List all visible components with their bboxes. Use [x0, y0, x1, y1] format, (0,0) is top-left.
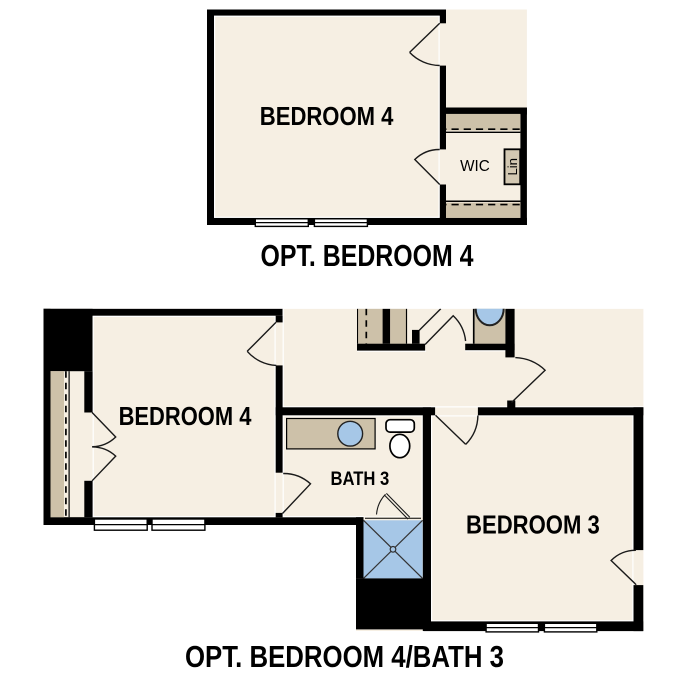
svg-text:OPT. BEDROOM 4: OPT. BEDROOM 4 [261, 238, 475, 273]
svg-text:BEDROOM 4: BEDROOM 4 [260, 101, 394, 131]
svg-text:WIC: WIC [460, 158, 490, 175]
svg-text:BEDROOM 3: BEDROOM 3 [466, 509, 600, 539]
svg-text:BEDROOM 4: BEDROOM 4 [119, 401, 252, 431]
svg-text:BATH 3: BATH 3 [331, 468, 390, 490]
svg-text:Lin: Lin [506, 158, 520, 176]
svg-text:OPT. BEDROOM 4/BATH 3: OPT. BEDROOM 4/BATH 3 [185, 639, 504, 674]
